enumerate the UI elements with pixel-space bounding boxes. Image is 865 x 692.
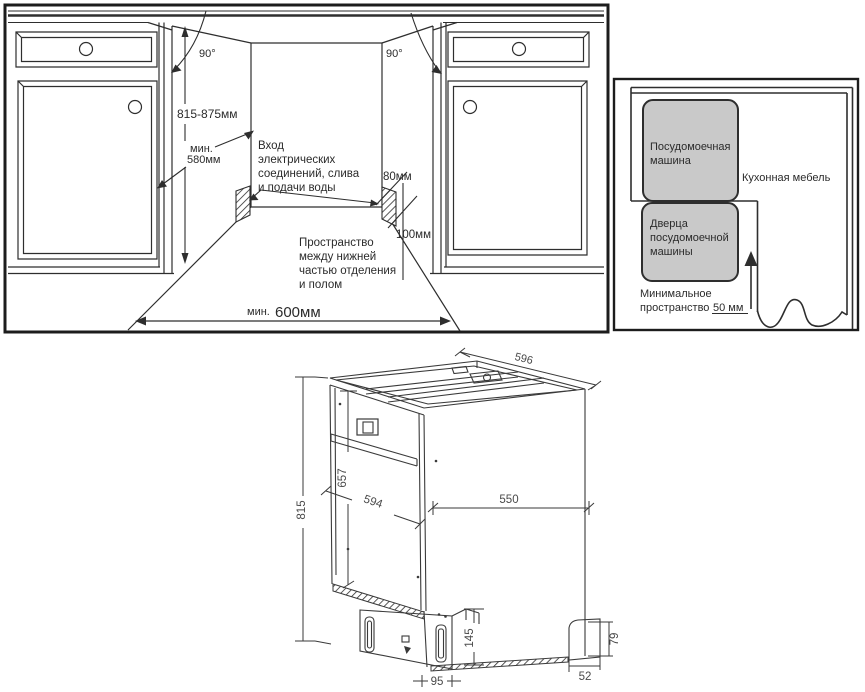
installation-diagrams-svg: 90° 90° 815-875мм мин. 580мм Вход электр… [0, 0, 865, 692]
door-label-2: посудомоечной [650, 232, 729, 244]
dishwasher-label-1: Посудомоечная [650, 141, 731, 153]
plinth-triangle-mark [404, 646, 411, 654]
dishwasher-3d: 596 815 657 594 550 145 95 52 79 [295, 348, 621, 688]
left-inlet-hatch [236, 186, 250, 222]
width-min-prefix: мин. [247, 306, 270, 318]
left-angle-label: 90° [199, 48, 216, 60]
floor-note-1: Пространство [299, 237, 374, 249]
min-space-arrow-head [745, 251, 758, 266]
plinth-slot-left [365, 617, 374, 652]
left-door-knob [129, 101, 142, 114]
floor-note-2: между нижней [299, 251, 376, 263]
depth-dim-arrow-a [244, 131, 254, 140]
plinth-slot-right [436, 625, 446, 662]
min-space-label-1: Минимальное [640, 288, 712, 300]
door-dot-1 [339, 403, 342, 406]
left-drawer-knob [80, 43, 93, 56]
height-range-label: 815-875мм [177, 107, 238, 121]
left-angle-arc [174, 11, 206, 70]
plinth-dot-1 [438, 613, 441, 616]
min-space-value: 50 мм [713, 302, 743, 314]
door-handle-inner [363, 422, 373, 433]
plinth-slot-left-inner [368, 621, 372, 648]
plinth-slot-right-inner [439, 629, 444, 658]
dim-80-label: 80мм [383, 171, 412, 183]
dim-52-label: 52 [579, 671, 592, 683]
dishwasher-label-2: машина [650, 155, 692, 167]
plinth-center-hole [402, 636, 409, 642]
width-min-value: 600мм [275, 304, 321, 321]
inlet-note-3: соединений, слива [258, 168, 360, 180]
dim-145-label: 145 [464, 628, 476, 647]
height-dim-arrow-down [182, 253, 189, 264]
dim-594-label: 594 [362, 493, 385, 511]
door-label-1: Дверца [650, 218, 689, 230]
dim-79-label: 79 [609, 633, 621, 646]
plinth-dot-2 [444, 615, 447, 618]
dim-95-label: 95 [431, 676, 444, 688]
side-dot-1 [435, 460, 438, 463]
plinth-side-bracket [452, 609, 479, 624]
dim-550-label: 550 [499, 494, 518, 506]
inlet-note-2: электрических [258, 154, 336, 166]
height-dim-arrow-up [182, 26, 189, 37]
dim-596-label: 596 [513, 351, 534, 367]
side-dot-2 [417, 576, 420, 579]
door-groove [331, 434, 417, 466]
furniture-wave-line [758, 300, 848, 328]
min-space-label-2: пространство [640, 302, 709, 314]
dim-657-line [340, 391, 357, 588]
floor-note-4: и полом [299, 279, 342, 291]
door-label-3: машины [650, 246, 693, 258]
right-angle-label: 90° [386, 48, 403, 60]
niche-diagram: 90° 90° 815-875мм мин. 580мм Вход электр… [5, 5, 608, 332]
floor-note-3: частью отделения [299, 265, 396, 277]
width-dim-arrow-right [440, 317, 451, 326]
dim-100-label: 100мм [396, 229, 431, 241]
furniture-label: Кухонная мебель [742, 172, 831, 184]
depth-min-label-2: 580мм [187, 154, 220, 166]
inlet-note-1: Вход [258, 140, 284, 152]
right-drawer-knob [513, 43, 526, 56]
dim-657-label: 657 [337, 468, 349, 487]
left-cabinet-lines [8, 23, 251, 274]
installation-manual-page: 90° 90° 815-875мм мин. 580мм Вход электр… [0, 0, 865, 692]
right-door-knob [464, 101, 477, 114]
door-and-side-edges [330, 385, 585, 667]
right-angle-arc [411, 13, 439, 71]
right-inlet-hatch [382, 187, 396, 226]
top-bracket-detail [452, 367, 468, 374]
inlet-note-4: и подачи воды [258, 182, 336, 194]
top-view-panel: Посудомоечная машина Дверца посудомоечно… [614, 79, 858, 330]
dim-815-label: 815 [296, 500, 308, 519]
